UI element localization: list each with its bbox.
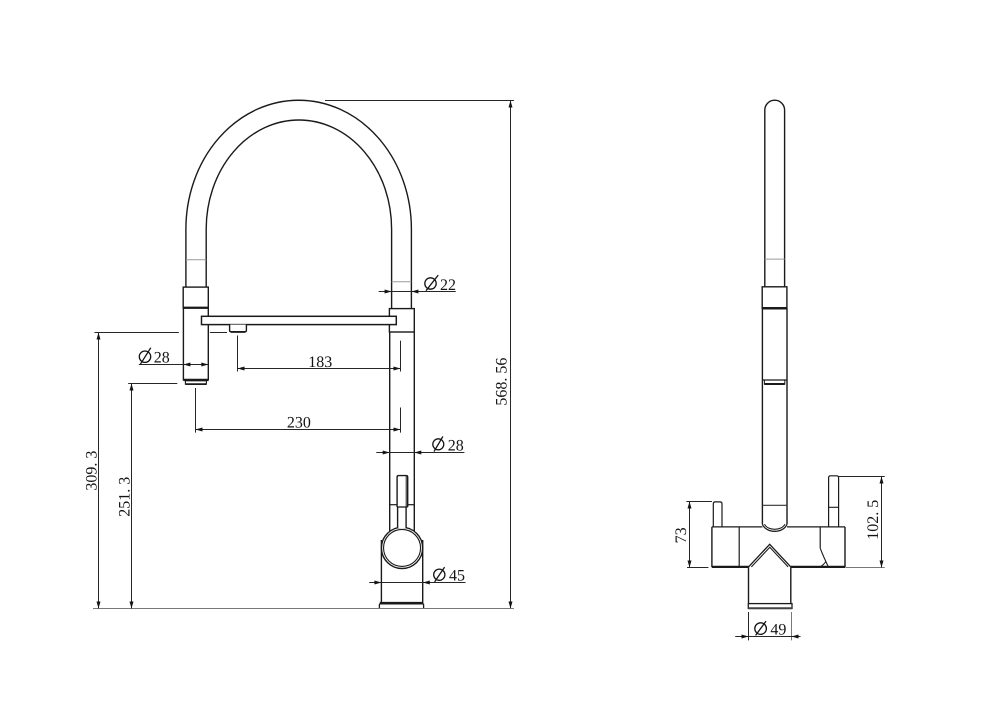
svg-text:45: 45 [449, 568, 465, 585]
svg-text:309. 3: 309. 3 [84, 451, 101, 491]
svg-text:49: 49 [770, 622, 786, 639]
svg-text:183: 183 [308, 354, 332, 371]
svg-text:28: 28 [448, 438, 464, 455]
svg-text:102. 5: 102. 5 [865, 500, 882, 540]
svg-text:28: 28 [154, 349, 170, 366]
svg-text:230: 230 [287, 414, 311, 431]
svg-text:568. 56: 568. 56 [493, 358, 510, 406]
svg-text:73: 73 [673, 527, 690, 543]
svg-text:251. 3: 251. 3 [116, 477, 133, 517]
svg-text:22: 22 [440, 277, 456, 294]
